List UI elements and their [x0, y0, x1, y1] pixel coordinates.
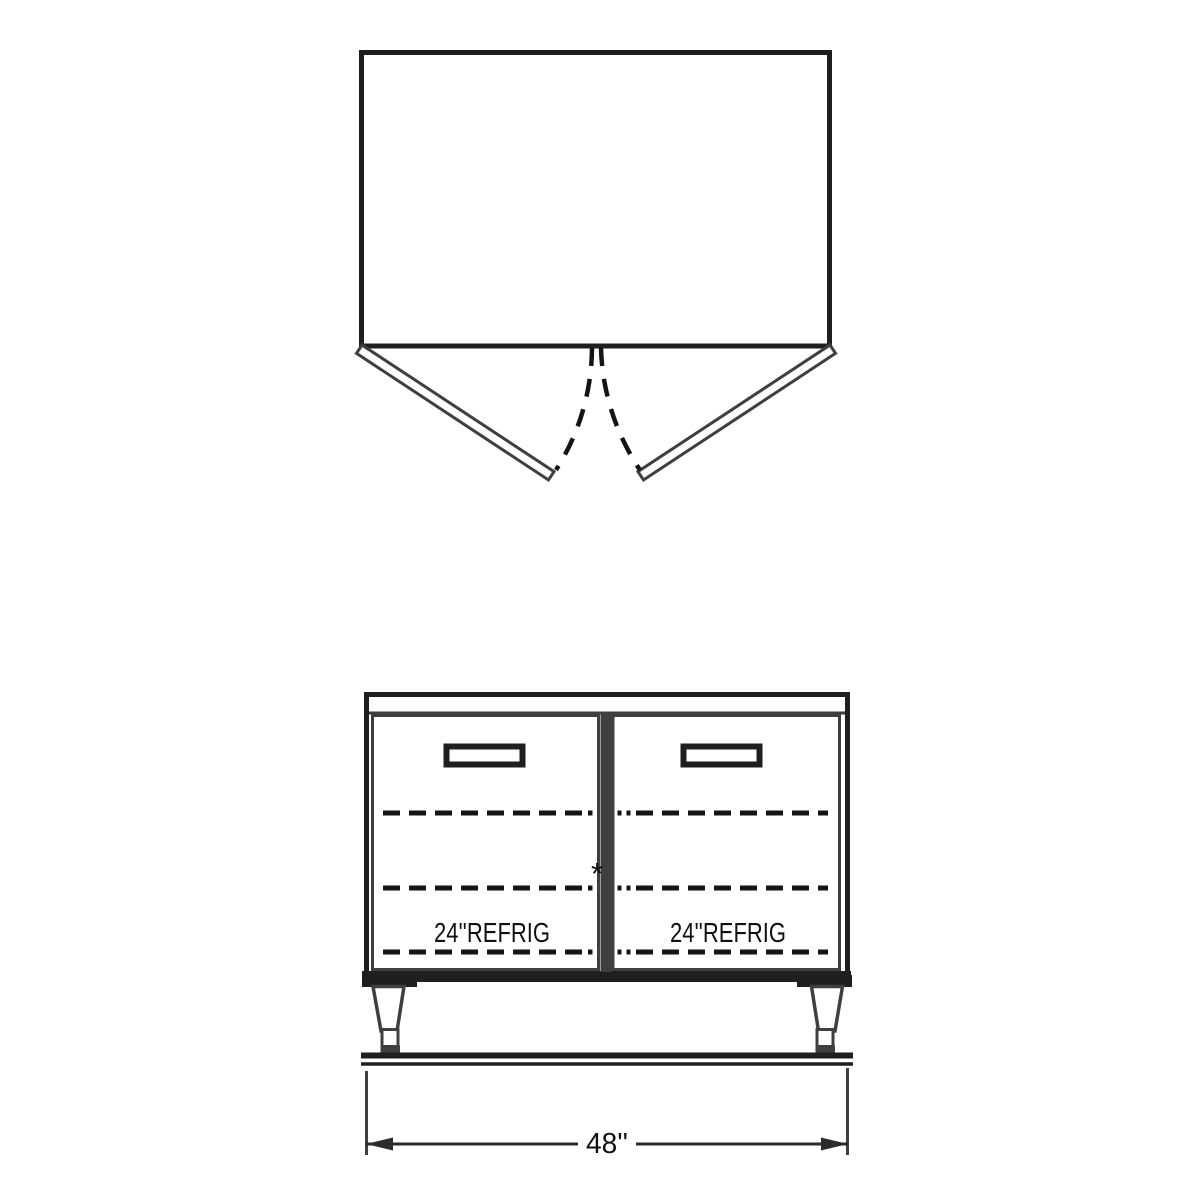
dimension-value: 48''	[586, 1128, 628, 1160]
cabinet-bottom-rail	[362, 971, 851, 982]
undercounter-refrigerator-drawing: 24''REFRIG 24''REFRIG *	[0, 0, 1200, 1200]
left-leg	[373, 987, 404, 1058]
front-elevation: 24''REFRIG 24''REFRIG *	[361, 695, 853, 1065]
left-leg-taper	[373, 987, 404, 1032]
floor-line-thick	[361, 1053, 853, 1059]
note-marker-asterisk: *	[591, 856, 603, 891]
left-leg-foot	[382, 1030, 398, 1047]
left-door-label: 24''REFRIG	[434, 917, 550, 948]
plan-right-door-swing-arc	[601, 348, 640, 470]
right-leg	[812, 987, 843, 1058]
right-leg-taper	[812, 987, 843, 1032]
spec-drawing-page: 24''REFRIG 24''REFRIG *	[0, 0, 1200, 1200]
plan-left-door-leaf	[356, 345, 554, 480]
right-door-handle	[684, 747, 760, 765]
right-leg-foot	[817, 1030, 833, 1047]
plan-view	[356, 53, 835, 480]
left-door-handle	[447, 747, 523, 765]
plan-cabinet-outline	[362, 53, 830, 347]
left-arrowhead-icon	[366, 1138, 393, 1151]
right-door-label: 24''REFRIG	[670, 917, 786, 948]
width-dimension: 48''	[366, 1068, 848, 1160]
right-arrowhead-icon	[821, 1138, 848, 1151]
plan-right-door-leaf	[638, 345, 836, 480]
center-mullion-divider	[601, 714, 612, 972]
plan-left-door-swing-arc	[556, 348, 592, 470]
